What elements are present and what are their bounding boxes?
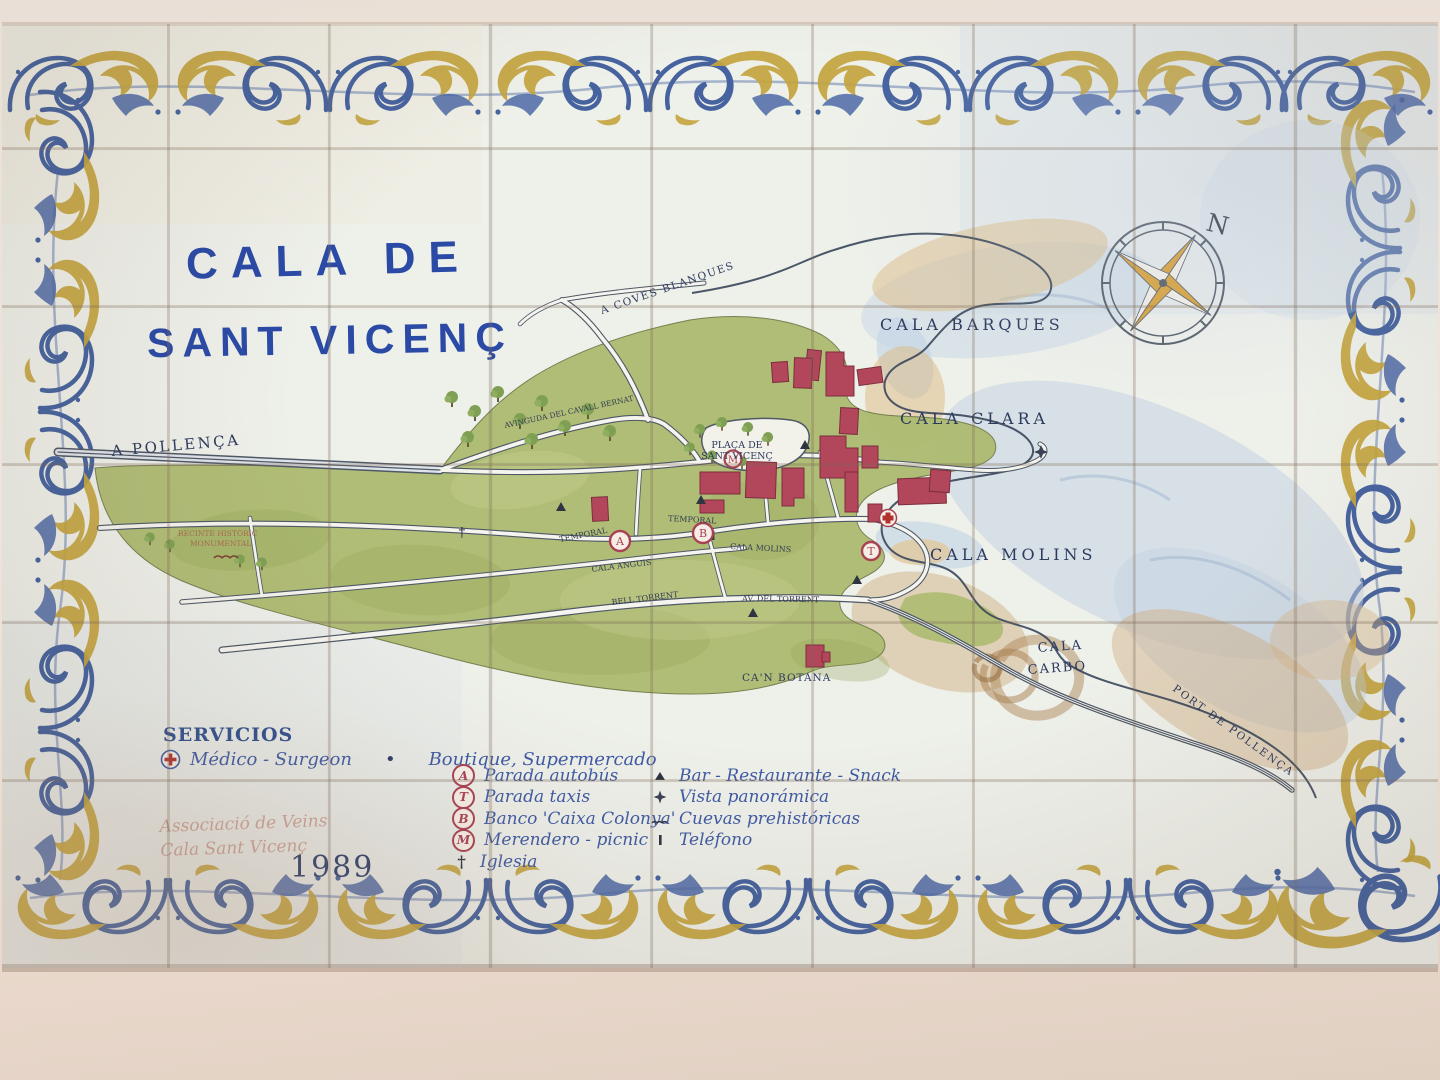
legend-item-label: Parada autobús [484, 766, 618, 786]
legend-item-label: Vista panorámica [679, 787, 829, 807]
legend-item-picnic: M Merendero - picnic [452, 830, 675, 852]
legend-item-church: † Iglesia [452, 851, 675, 873]
church-marker: † [458, 524, 466, 540]
bank-icon: B [452, 807, 475, 830]
legend-item-bus: A Parada autobús [452, 765, 675, 787]
legend-item-caves: Cuevas prehistóricas [650, 808, 901, 830]
bay-label-cala-clara: CALA CLARA [900, 409, 1049, 428]
tile-mural: † A B T M N A POLLENÇA A CO [0, 0, 1440, 1080]
bus-stop-marker: A [610, 531, 630, 551]
legend-item-phone: Teléfono [650, 830, 901, 852]
legend-item-label: Teléfono [679, 830, 752, 850]
phone-icon [650, 833, 670, 847]
legend-separator: • [385, 749, 396, 770]
legend-column-left: A Parada autobús T Parada taxis B Banco … [452, 765, 675, 873]
map-title-line1: CALA DE [185, 232, 471, 289]
svg-text:A: A [615, 535, 625, 548]
wall-photo: † A B T M N A POLLENÇA A CO [0, 0, 1440, 1080]
bay-label-cala-carbo-1: CALA [1037, 638, 1083, 656]
placa-label-1: PLAÇA DE [711, 440, 762, 451]
bay-label-cala-molins: CALA MOLINS [930, 545, 1096, 564]
legend-item-taxi: T Parada taxis [452, 787, 675, 809]
viewpoint-icon [650, 790, 670, 804]
year-label: 1989 [290, 850, 374, 885]
svg-text:B: B [699, 527, 707, 540]
placa-label-2: SANT VICENÇ [701, 451, 772, 462]
legend-item-label: Banco 'Caixa Colonya' [484, 809, 675, 829]
legend-item-label: Parada taxis [484, 787, 590, 807]
recinte-label-1: RECINTE HISTÒRIC [178, 529, 258, 538]
church-icon: † [452, 852, 471, 871]
legend-column-right: Bar - Restaurante - Snack Vista panorámi… [650, 765, 901, 851]
bus-stop-icon: A [452, 764, 475, 787]
legend-item-bank: B Banco 'Caixa Colonya' [452, 808, 675, 830]
street-label-av-del-torrent: AV. DEL TORRENT [741, 594, 820, 604]
legend-item-bar: Bar - Restaurante - Snack [650, 765, 901, 787]
legend-item-label: Cuevas prehistóricas [679, 809, 860, 829]
area-label-can-botana: CA'N BOTANA [742, 672, 831, 684]
picnic-icon: M [452, 829, 475, 852]
map-title-line2: SANT VICENÇ [147, 314, 514, 367]
legend-item-viewpoint: Vista panorámica [650, 787, 901, 809]
legend-item-label: Iglesia [480, 852, 537, 872]
medical-marker [880, 510, 897, 527]
medical-cross-icon [160, 749, 181, 770]
svg-text:T: T [867, 545, 875, 558]
taxi-stop-marker: T [862, 542, 880, 560]
legend-heading: SERVICIOS [163, 724, 293, 746]
recinte-label-2: MONUMENTAL [190, 539, 251, 548]
bar-icon [650, 769, 670, 783]
legend-item-label: Bar - Restaurante - Snack [679, 766, 901, 786]
taxi-stop-icon: T [452, 786, 475, 809]
legend-item-label: Merendero - picnic [484, 830, 648, 850]
caves-icon [650, 812, 670, 826]
medico-label: Médico - Surgeon [190, 749, 352, 770]
bay-label-cala-barques: CALA BARQUES [880, 315, 1064, 334]
bank-marker: B [693, 523, 713, 543]
